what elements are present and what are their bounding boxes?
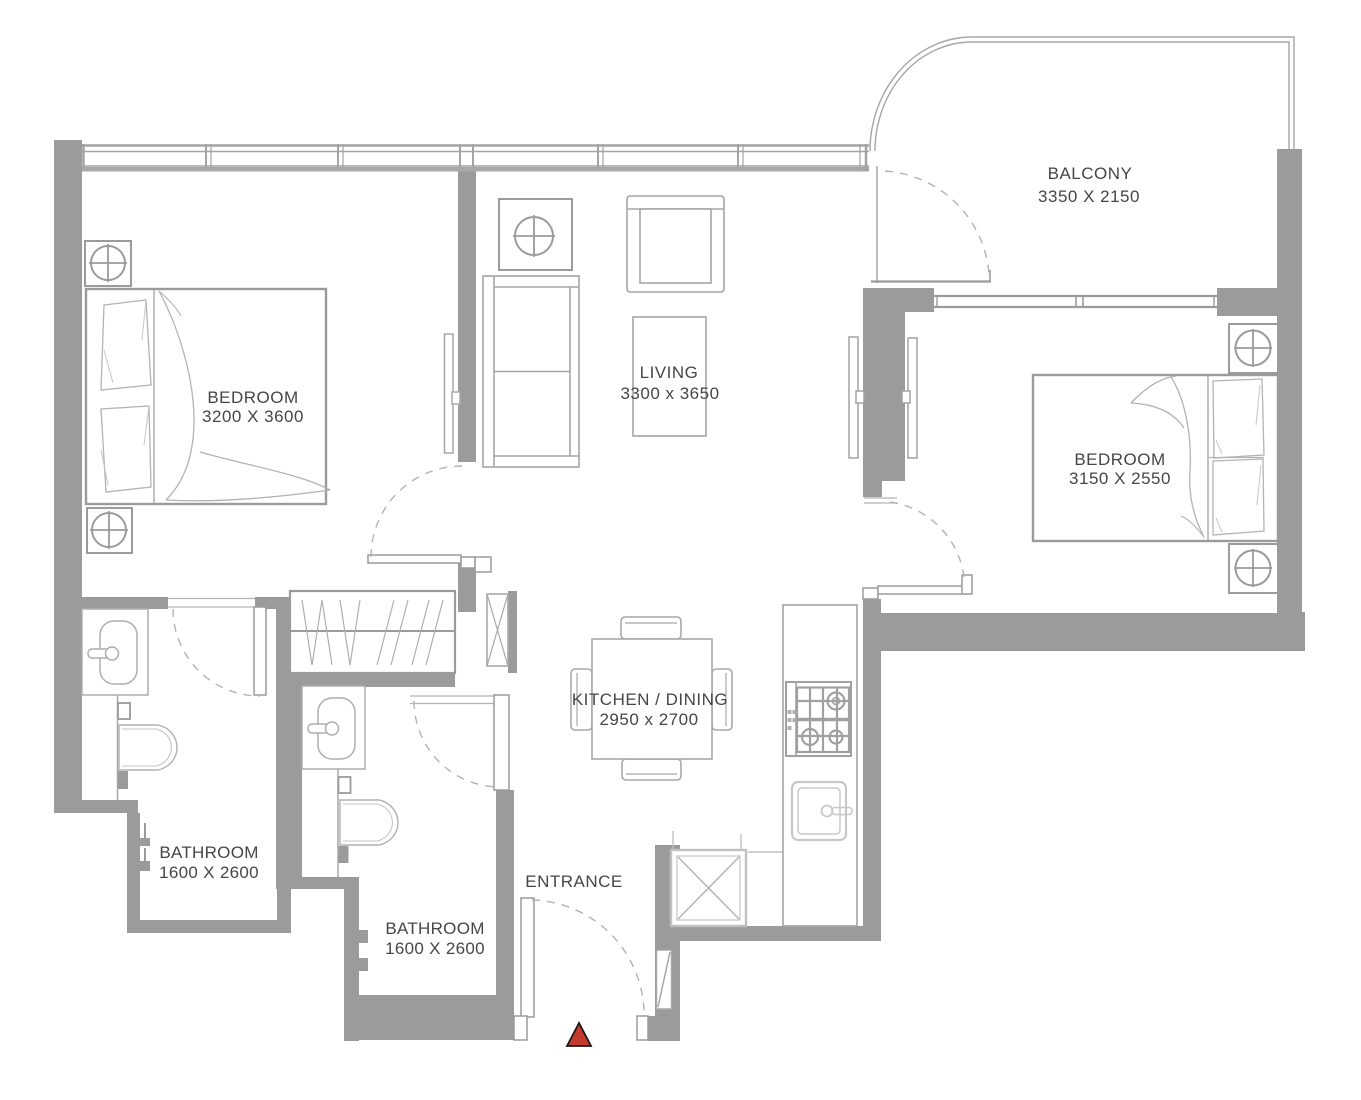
svg-text:LIVING: LIVING (640, 363, 699, 382)
svg-text:2950 x 2700: 2950 x 2700 (599, 710, 698, 729)
svg-text:BEDROOM: BEDROOM (207, 388, 298, 407)
svg-text:ENTRANCE: ENTRANCE (525, 872, 623, 891)
svg-text:3300 x 3650: 3300 x 3650 (620, 384, 719, 403)
svg-text:BATHROOM: BATHROOM (385, 919, 484, 938)
svg-text:BALCONY: BALCONY (1048, 164, 1133, 183)
svg-text:BEDROOM: BEDROOM (1074, 450, 1165, 469)
svg-text:3200 X 3600: 3200 X 3600 (202, 407, 304, 426)
svg-text:3350 X 2150: 3350 X 2150 (1038, 187, 1140, 206)
svg-text:3150 X 2550: 3150 X 2550 (1069, 469, 1171, 488)
svg-text:1600 X 2600: 1600 X 2600 (159, 863, 259, 882)
svg-text:1600 X 2600: 1600 X 2600 (385, 939, 485, 958)
svg-text:KITCHEN / DINING: KITCHEN / DINING (572, 690, 728, 709)
svg-text:BATHROOM: BATHROOM (159, 843, 258, 862)
